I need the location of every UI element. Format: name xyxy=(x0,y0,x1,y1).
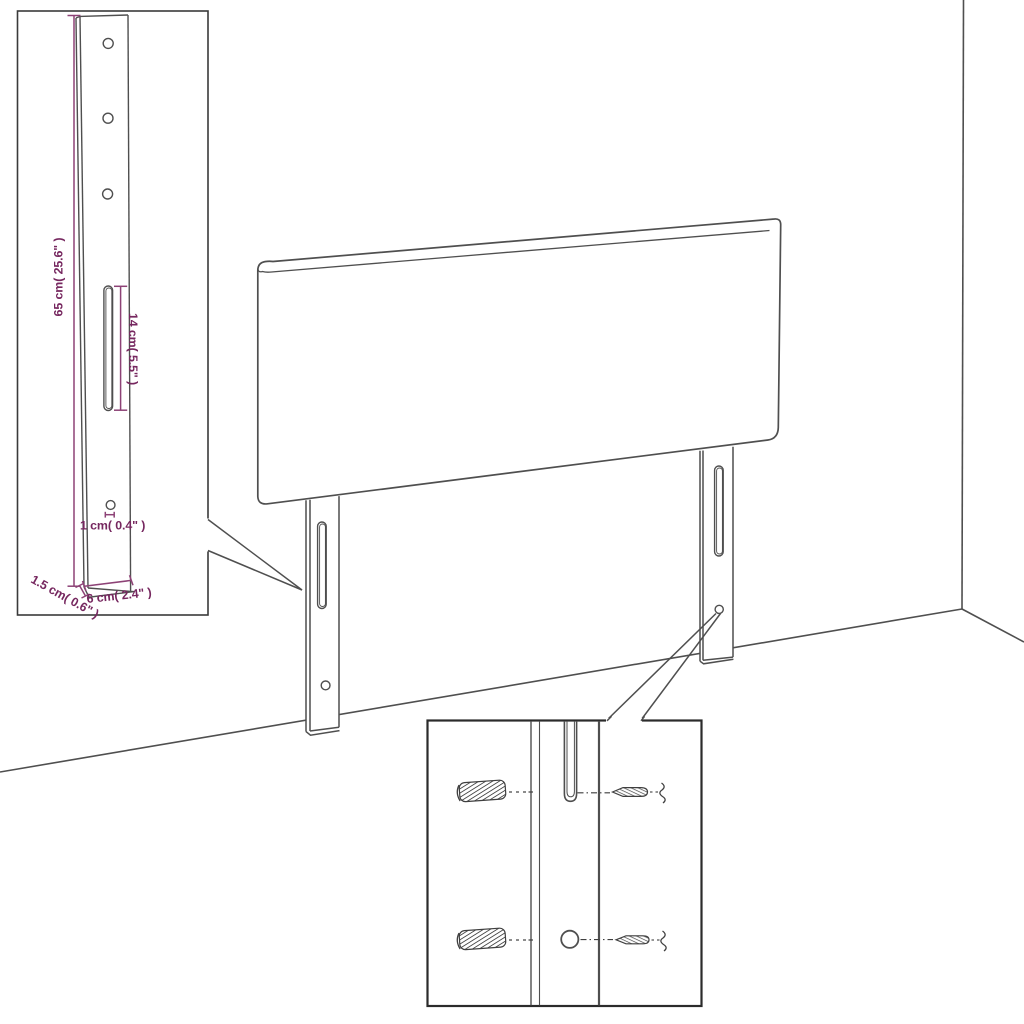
headboard-dimension-diagram: 65 cm( 25.6" ) 14 cm( 5.5" ) 1 cm( 0.4" … xyxy=(0,0,1024,1024)
headboard-right-leg xyxy=(700,447,733,664)
diagram-canvas: 65 cm( 25.6" ) 14 cm( 5.5" ) 1 cm( 0.4" … xyxy=(0,0,1024,1024)
label-slot-14cm: 14 cm( 5.5" ) xyxy=(126,313,140,385)
label-height-65cm: 65 cm( 25.6" ) xyxy=(52,238,66,317)
label-hole-1cm: 1 cm( 0.4" ) xyxy=(80,519,145,533)
callout-mounting-detail xyxy=(428,716,702,1006)
callout-leg-detail: 65 cm( 25.6" ) 14 cm( 5.5" ) 1 cm( 0.4" … xyxy=(18,11,209,621)
headboard-left-leg xyxy=(306,496,340,735)
floor-line-right xyxy=(962,609,1024,642)
leader-lines-leg-detail xyxy=(208,520,302,591)
wall-corner-line xyxy=(962,0,964,609)
wall-anchor-icon xyxy=(457,780,506,802)
wall-anchor-icon xyxy=(457,928,506,950)
